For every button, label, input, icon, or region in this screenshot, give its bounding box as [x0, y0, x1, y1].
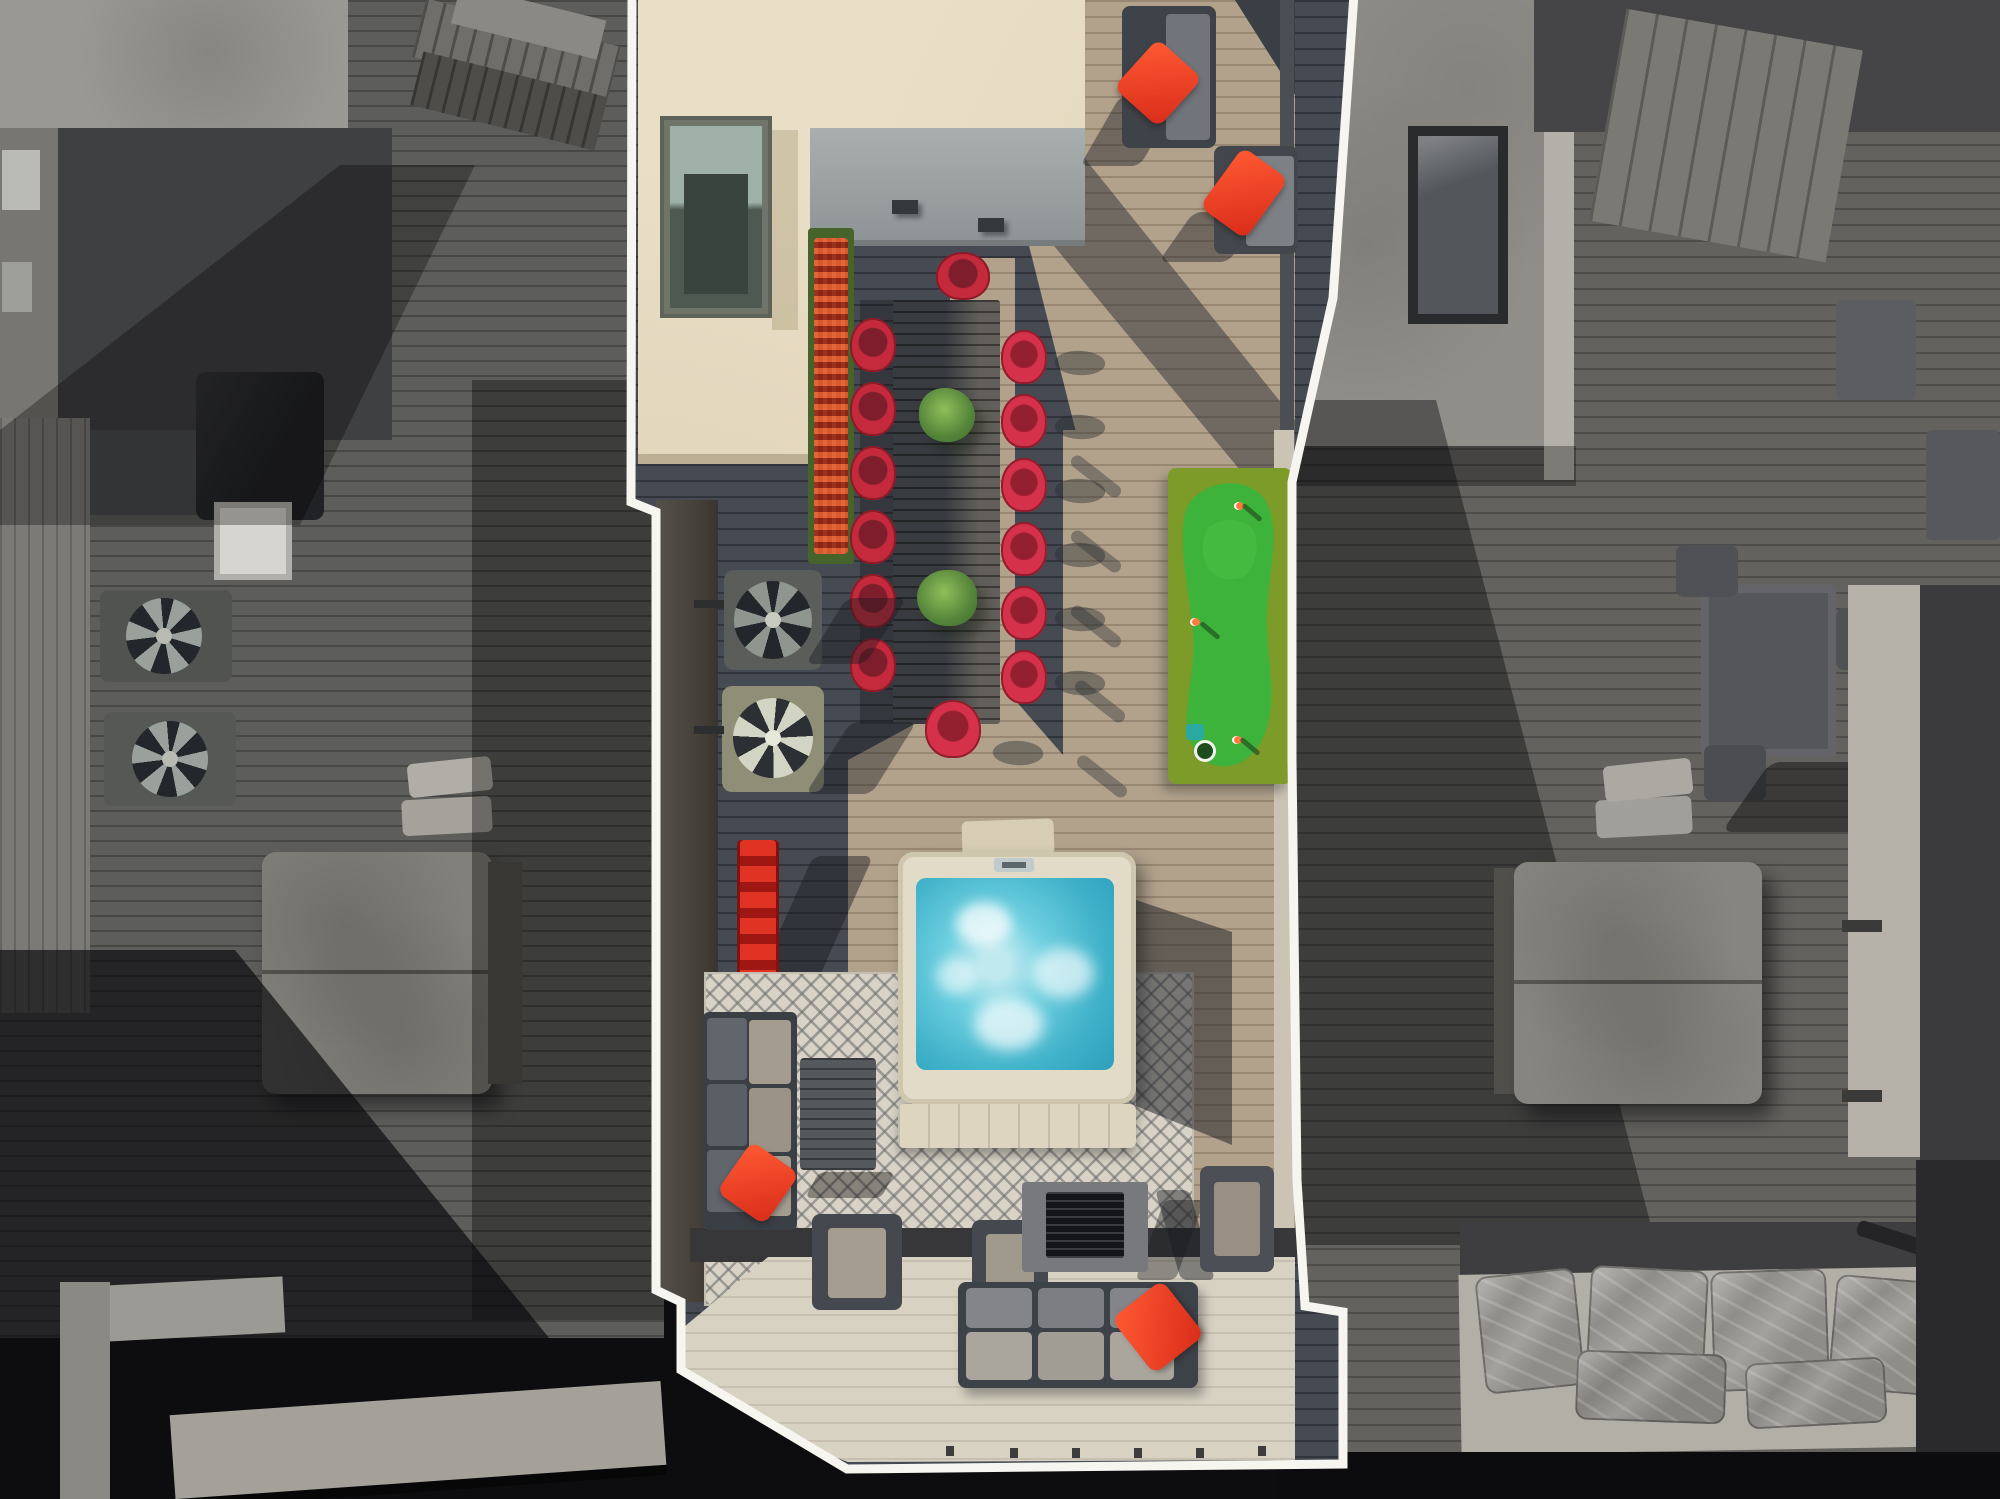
- property-outline: [0, 0, 2000, 1499]
- aerial-rooftop-photo: [0, 0, 2000, 1499]
